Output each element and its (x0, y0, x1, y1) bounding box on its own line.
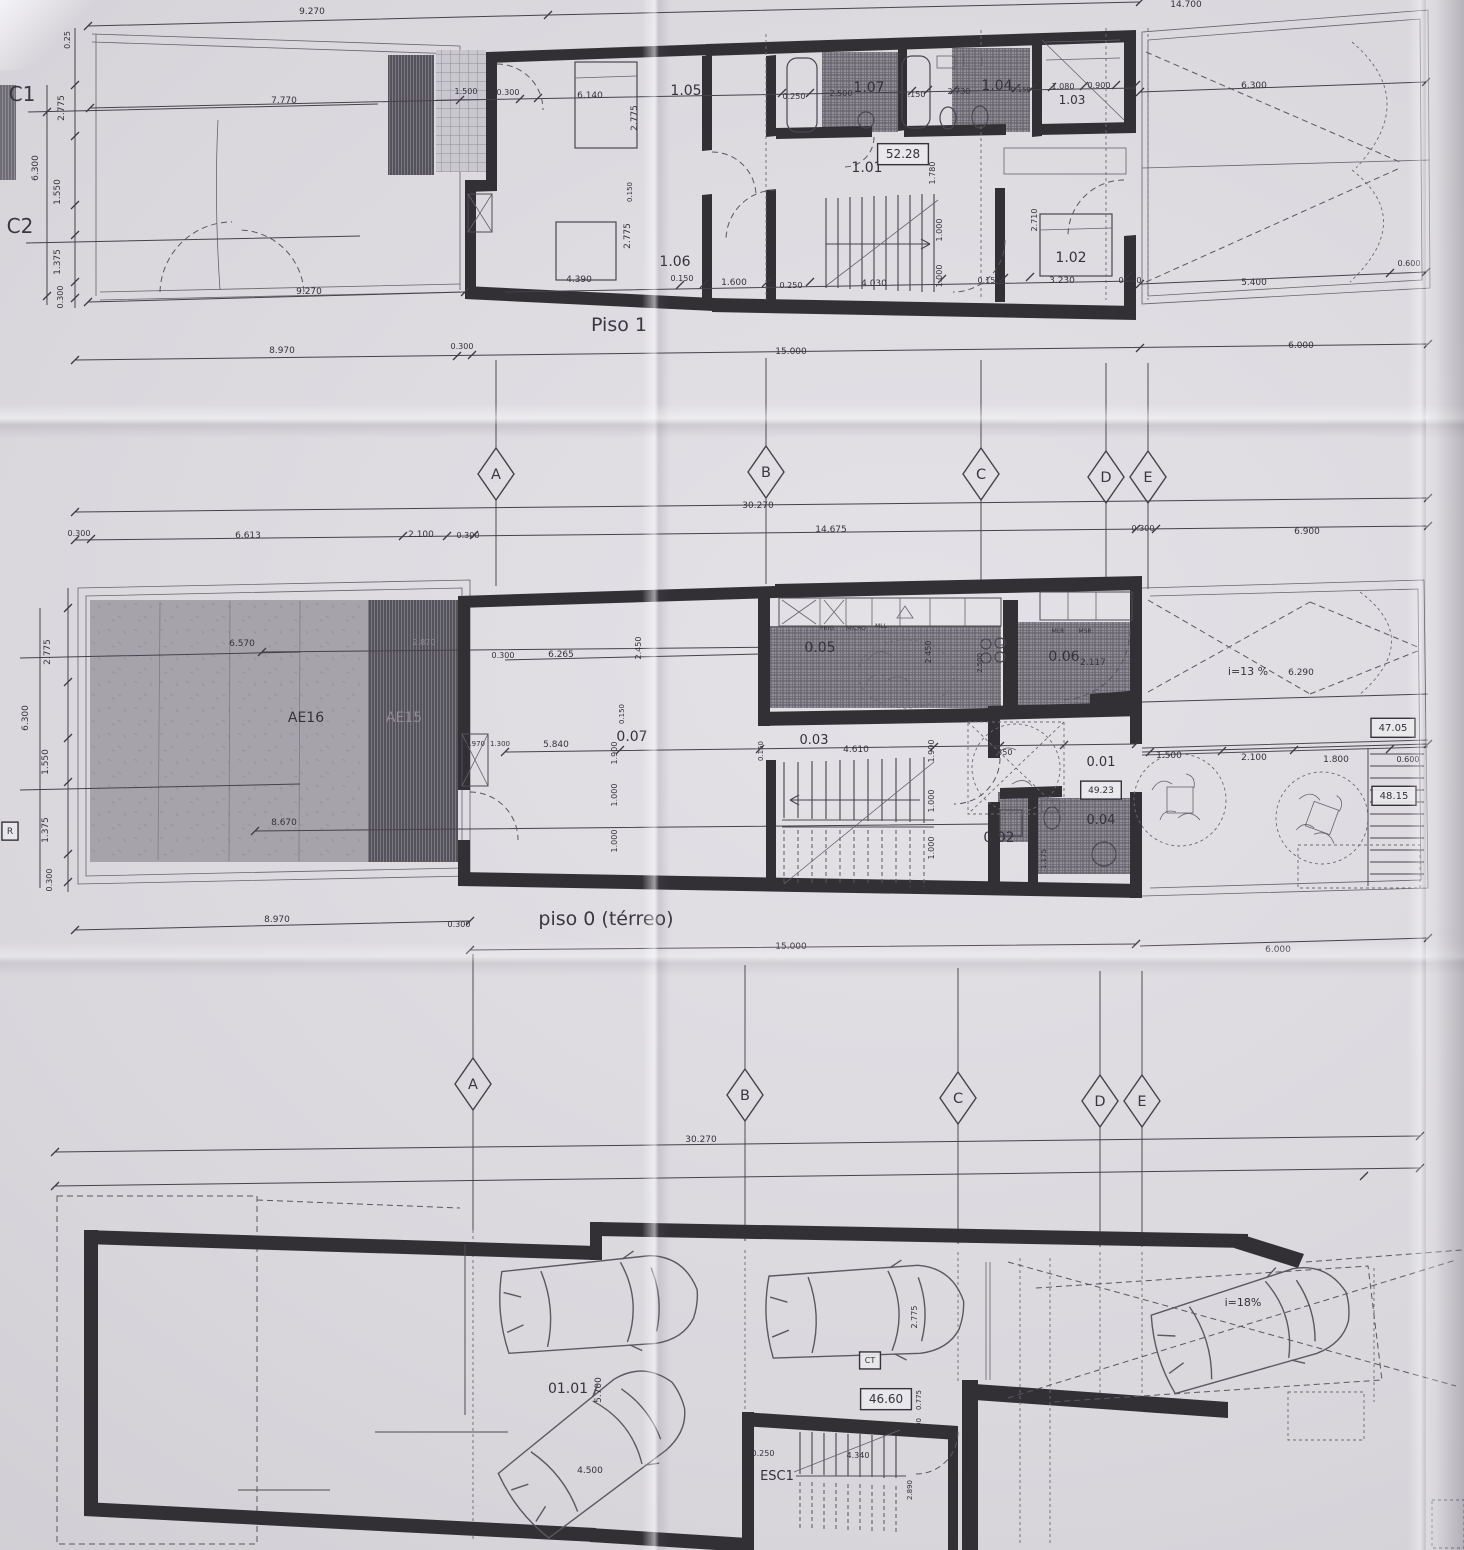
grid-letter-C: C (976, 467, 986, 483)
label-01-01: 01.01 (548, 1381, 588, 1397)
label-8-670: 8.670 (271, 818, 297, 828)
label-0-600: 0.600 (1397, 755, 1420, 764)
label-0-04: 0.04 (1087, 813, 1116, 828)
label-AE15: AE15 (386, 710, 422, 726)
label-1-550: 1.550 (53, 179, 63, 205)
label-R: R (7, 827, 13, 837)
label-6-300: 6.300 (1241, 81, 1267, 91)
label-48-15: 48.15 (1380, 791, 1409, 802)
label-0-25: 0.25 (63, 31, 72, 49)
floor-plan-drawing: 9.27014.700C1C20.252.7756.3001.5501.3750… (0, 0, 1464, 1550)
label-2-710: 2.710 (1030, 209, 1039, 232)
label-0-300: 0.300 (448, 920, 471, 929)
label-1-06: 1.06 (659, 254, 690, 270)
label-1-375: 1.375 (41, 817, 51, 843)
label-C1: C1 (9, 82, 36, 106)
grid-letter-B: B (740, 1088, 750, 1104)
grid-letter-A: A (468, 1077, 478, 1093)
scanned-floor-plan-page: 9.27014.700C1C20.252.7756.3001.5501.3750… (0, 0, 1464, 1550)
label-9-270: 9.270 (299, 7, 325, 17)
labels-garagem: 30.27001.015.7004.5002.775CT46.600.7750.… (548, 1135, 1261, 1500)
label-0-300: 0.300 (492, 651, 515, 660)
label-1-800: 1.800 (1323, 755, 1349, 765)
grid-letter-E: E (1137, 1094, 1146, 1110)
label-1-900: 1.900 (927, 740, 936, 763)
label-1-780: 1.780 (928, 162, 937, 185)
label-piso-0-t-rreo-: piso 0 (térreo) (538, 908, 673, 930)
label-2-730: 2.730 (948, 87, 971, 96)
label-CT: CT (865, 1356, 876, 1365)
label-C2: C2 (7, 214, 34, 238)
label-1-500: 1.500 (1156, 751, 1182, 761)
label-2-775: 2.775 (57, 95, 67, 121)
label-FRIG: FRIG (820, 625, 834, 632)
label-8-970: 8.970 (264, 915, 290, 925)
label-6-570: 6.570 (229, 639, 255, 649)
label-4-610: 4.610 (843, 745, 869, 755)
label-1-350: 1.350 (990, 748, 1013, 757)
grid-letter-D: D (1100, 470, 1111, 486)
label-9-270: 9.270 (296, 287, 322, 297)
label-3-230: 3.230 (1049, 276, 1075, 286)
label-0-300: 0.300 (915, 1418, 923, 1438)
label-6-265: 6.265 (548, 650, 574, 660)
grid-letter-A: A (491, 467, 501, 483)
label-1-550: 1.550 (41, 749, 51, 775)
label-0-150: 0.150 (1011, 86, 1031, 94)
label-0-150: 0.150 (626, 182, 634, 202)
label-1-175: 1.175 (1040, 849, 1048, 869)
label-0-150: 0.150 (618, 704, 626, 724)
label-0-300: 0.300 (457, 531, 480, 540)
label-30-270: 30.270 (742, 501, 774, 511)
label-1-080: 1.080 (1052, 82, 1075, 91)
label-14-700: 14.700 (1170, 0, 1202, 10)
label-6-300: 6.300 (21, 705, 31, 731)
label-2-100: 2.100 (408, 530, 434, 540)
label-1-000: 1.000 (610, 830, 619, 853)
label-0-300: 0.300 (68, 529, 91, 538)
label-2-450: 2.450 (924, 641, 933, 664)
label-6-140: 6.140 (577, 91, 603, 101)
label-0-300: 0.300 (451, 342, 474, 351)
label-1-000: 1.000 (610, 784, 619, 807)
label-6-613: 6.613 (235, 531, 261, 541)
grid-row-1: ABCDE (478, 358, 1166, 589)
label-1-07: 1.07 (853, 80, 884, 96)
label-4-030: 4.030 (861, 279, 887, 289)
label-0-150: 0.150 (757, 741, 765, 761)
label-0-300: 0.300 (1132, 524, 1155, 533)
label-MLL: MLL (875, 623, 888, 630)
label-4-340: 4.340 (847, 1451, 870, 1460)
grid-row-2: ABCDE (455, 954, 1160, 1247)
label-46-60: 46.60 (869, 1392, 903, 1406)
label-2-117: 2.117 (1080, 658, 1106, 668)
label-0-228: 0.228 (1130, 655, 1138, 675)
label-47-05: 47.05 (1379, 723, 1408, 734)
label-5-400: 5.400 (1241, 278, 1267, 288)
label-1-375: 1.375 (53, 249, 63, 275)
label-0-250: 0.250 (783, 92, 806, 101)
label-0-250: 0.250 (752, 1449, 775, 1458)
label-1-000: 1.000 (935, 219, 944, 242)
label-0-600: 0.600 (1398, 259, 1421, 268)
label-5-700: 5.700 (594, 1377, 604, 1403)
label-4-970: 4.970 (465, 740, 485, 748)
plan-piso1 (0, 0, 1432, 364)
label-i-13-: i=13 % (1228, 665, 1268, 678)
grid-letter-D: D (1094, 1094, 1105, 1110)
grid-letter-C: C (953, 1091, 963, 1107)
label-6-300: 6.300 (31, 155, 41, 181)
label-2-890: 2.890 (906, 1480, 914, 1500)
label-14-675: 14.675 (815, 525, 847, 535)
label-1-03: 1.03 (1059, 93, 1086, 107)
label-ESC1: ESC1 (760, 1469, 794, 1484)
label-15-000: 15.000 (775, 347, 807, 357)
label-0-06: 0.06 (1048, 649, 1079, 665)
label-4-500: 4.500 (577, 1466, 603, 1476)
label-1-000: 1.000 (927, 837, 936, 860)
label-0-07: 0.07 (616, 729, 647, 745)
label-1-000: 1.000 (935, 265, 944, 288)
label-2-100: 2.100 (1241, 753, 1267, 763)
label-2-500: 2.500 (976, 653, 984, 673)
label-0-150: 0.150 (671, 274, 694, 283)
label-6-290: 6.290 (1288, 668, 1314, 678)
label-2-450: 2.450 (634, 637, 643, 660)
label-7-770: 7.770 (271, 96, 297, 106)
label-2-775: 2.775 (43, 639, 53, 665)
label-30-270: 30.270 (685, 1135, 717, 1145)
label-i-18-: i=18% (1225, 1296, 1262, 1309)
label-5-840: 5.840 (543, 740, 569, 750)
label-1-500: 1.500 (455, 87, 478, 96)
label-AE16: AE16 (288, 710, 324, 726)
label-2-500: 2.500 (830, 89, 853, 98)
label-8-970: 8.970 (269, 346, 295, 356)
plan-garagem (51, 1132, 1464, 1550)
label-0-300: 0.300 (1119, 276, 1142, 285)
label-0-01: 0.01 (1087, 755, 1116, 770)
plan-piso0 (20, 494, 1432, 954)
label-1-04: 1.04 (981, 78, 1012, 94)
grid-letter-B: B (761, 465, 771, 481)
label-2-775: 2.775 (623, 223, 633, 249)
label-15-000: 15.000 (775, 942, 807, 952)
label-Piso-1: Piso 1 (591, 314, 647, 336)
grid-letter-E: E (1143, 470, 1152, 486)
label-0-02: 0.02 (983, 830, 1014, 846)
label-0-775: 0.775 (915, 1390, 923, 1410)
label-2-775: 2.775 (910, 1306, 919, 1329)
label-1-300: 1.300 (490, 740, 510, 748)
label-2-870: 2.870 (413, 638, 436, 647)
label-4-390: 4.390 (566, 275, 592, 285)
label-0-250: 0.250 (780, 281, 803, 290)
label-6-000: 6.000 (1265, 945, 1291, 955)
label-1-02: 1.02 (1055, 250, 1086, 266)
label-0-03: 0.03 (800, 733, 829, 748)
label-2-775: 2.775 (630, 105, 640, 131)
label-0-300: 0.300 (56, 286, 65, 309)
label-0-150: 0.150 (903, 90, 926, 99)
label-1-600: 1.600 (721, 278, 747, 288)
label-MICRO: MICRO (846, 625, 866, 632)
label-52-28: 52.28 (886, 147, 920, 161)
label-1-000: 1.000 (927, 790, 936, 813)
label-MLR: MLR (1052, 628, 1065, 635)
label-0-300: 0.300 (45, 869, 54, 892)
label-1-05: 1.05 (670, 83, 701, 99)
label-6-900: 6.900 (1294, 527, 1320, 537)
label-6-000: 6.000 (1288, 341, 1314, 351)
label-0-900: 0.900 (1088, 81, 1111, 90)
label-0-300: 0.300 (497, 88, 520, 97)
label-49-23: 49.23 (1088, 786, 1114, 796)
label-MSR: MSR (1078, 628, 1091, 635)
label-0-05: 0.05 (804, 640, 835, 656)
